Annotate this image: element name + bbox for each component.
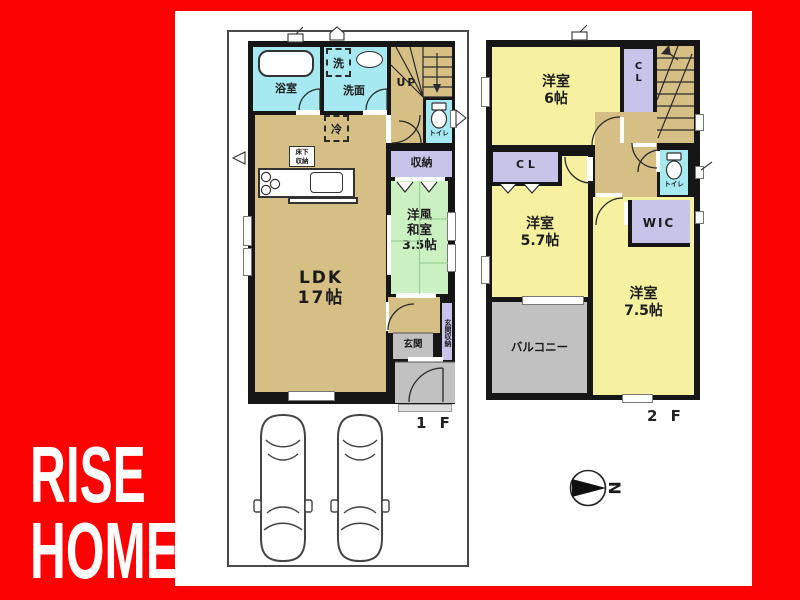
- window: [450, 110, 457, 128]
- tatami-label: 洋風 和室 3.5帖: [391, 208, 448, 252]
- window: [243, 216, 252, 246]
- window: [622, 394, 653, 403]
- wic-label: WIC: [632, 216, 686, 230]
- porch: [395, 362, 455, 403]
- kitchen-sink-icon: [310, 172, 343, 193]
- balcony-label: バルコニー: [494, 341, 585, 355]
- room-entrance-hall: [388, 297, 440, 333]
- underfloor-storage-box: 床下 収納: [289, 146, 315, 167]
- entrance-storage-label: 玄関収納: [441, 306, 452, 360]
- closet-mid-label: C L: [493, 159, 558, 172]
- bath-label: 浴室: [256, 83, 316, 96]
- room-hall-2f: [595, 112, 657, 197]
- floor1-label: 1 F: [416, 414, 454, 432]
- room-stairs-2f: [657, 46, 694, 143]
- room-bedroom57-nook: [562, 156, 588, 186]
- window: [243, 248, 252, 276]
- room-ldk: [255, 115, 386, 392]
- floorplan-flyer: RISE HOME 洗 冷 床下 収納 浴室 洗面 UP トイレ 収納 洋風 和…: [0, 0, 800, 600]
- bedroom57-label: 洋室 5.7帖: [496, 216, 584, 249]
- window: [481, 256, 490, 284]
- toilet-1f-label: トイレ: [426, 130, 452, 138]
- kitchen-counter-ledge: [288, 197, 358, 204]
- stairs-up-label: UP: [393, 77, 421, 90]
- brand-line2: HOME: [30, 506, 179, 595]
- toilet-2f-label: トイレ: [660, 181, 688, 189]
- window: [481, 77, 490, 107]
- ldk-label: LDK 17帖: [262, 268, 380, 308]
- storage-1f-label: 収納: [391, 157, 452, 170]
- window: [522, 296, 584, 305]
- washroom-label: 洗面: [324, 85, 384, 98]
- window: [447, 244, 456, 272]
- washer-box: 洗: [326, 48, 351, 77]
- porch-step: [398, 404, 452, 412]
- window: [695, 166, 704, 179]
- window: [695, 114, 704, 131]
- window: [447, 212, 456, 241]
- window: [288, 391, 335, 401]
- fridge-label: 冷: [331, 121, 342, 137]
- washbasin-icon: [356, 51, 383, 68]
- brand-logo: RISE HOME: [30, 437, 179, 589]
- fridge-box: 冷: [324, 115, 349, 142]
- entrance-label: 玄関: [393, 339, 433, 350]
- closet-top-label: C L: [624, 61, 653, 85]
- bedroom75-label: 洋室 7.5帖: [597, 286, 690, 319]
- washer-label: 洗: [333, 55, 344, 71]
- window: [695, 211, 704, 224]
- bathtub-icon: [258, 50, 314, 77]
- underfloor-storage-label: 床下 収納: [296, 148, 309, 164]
- compass-north-label: N: [603, 479, 623, 497]
- bedroom6-label: 洋室 6帖: [500, 74, 612, 107]
- floor2-label: 2 F: [647, 407, 685, 425]
